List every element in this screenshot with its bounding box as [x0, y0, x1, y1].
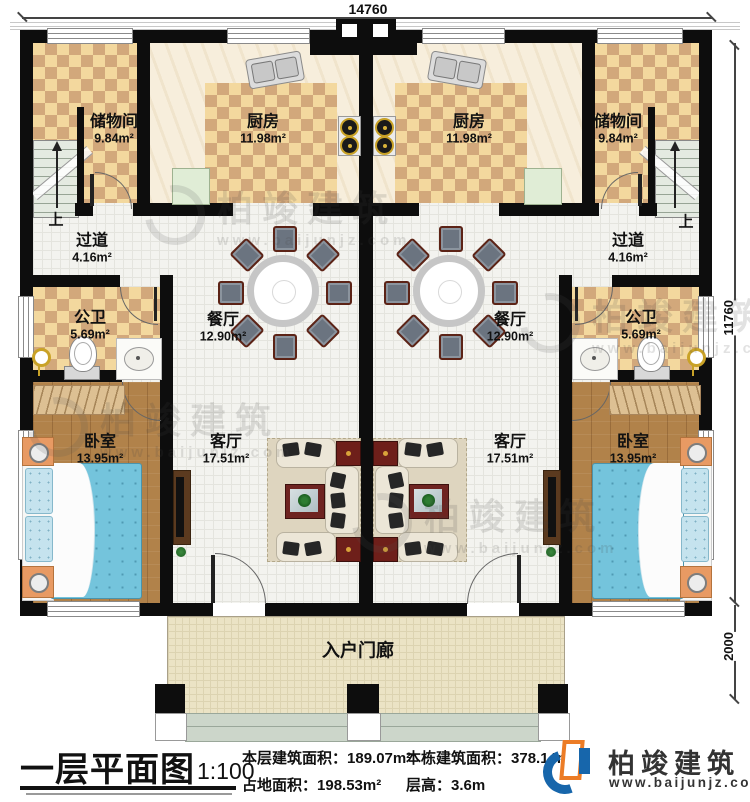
wall-stair-right	[648, 107, 655, 203]
coffee-table-left	[285, 484, 325, 519]
dining-chair	[218, 281, 244, 305]
chimney-bar	[310, 40, 417, 55]
room-area: 13.95m²	[610, 452, 657, 466]
room-label-hallway-right: 过道 4.16m²	[608, 233, 648, 266]
bed-pillow	[25, 516, 53, 562]
room-area: 17.51m²	[203, 452, 250, 466]
stat-label: 占地面积：	[242, 777, 317, 794]
dining-chair	[492, 281, 518, 305]
drain-stem-left	[38, 364, 40, 376]
chimney-flue	[342, 24, 357, 37]
dining-table-center-right	[438, 280, 462, 304]
sofa-cushion	[388, 512, 404, 529]
bed-blanket-left	[50, 463, 95, 597]
dimension-top-value: 14760	[346, 1, 391, 17]
room-area: 5.69m²	[70, 328, 110, 342]
stairs-arrow-right	[674, 150, 676, 208]
tv-plant-left	[176, 547, 186, 557]
room-name: 过道	[72, 233, 112, 251]
nightstand	[680, 437, 712, 466]
room-label-living-right: 客厅 17.51m²	[487, 434, 534, 467]
dimension-side-value: 11760	[721, 300, 736, 335]
stat-label: 层高：	[406, 777, 451, 794]
room-name: 公卫	[70, 310, 110, 328]
sofa-cushion	[330, 512, 346, 529]
drain-stem-right	[692, 364, 694, 376]
room-label-storage-left: 储物间 9.84m²	[90, 114, 138, 147]
sofa-side-right	[375, 466, 409, 534]
dining-chair	[326, 281, 352, 305]
room-name: 客厅	[203, 434, 250, 452]
bed-pillow	[681, 516, 709, 562]
stat-value: 3.6m	[451, 777, 485, 794]
stairs-up-text: 上	[48, 211, 63, 228]
porch-column	[347, 684, 379, 713]
floor-drain-left	[32, 348, 51, 367]
porch-column-base	[538, 713, 570, 741]
dimension-line-top	[22, 17, 712, 19]
side-table-left	[336, 441, 361, 466]
stat-floor-area: 本层建筑面积：189.07m²	[242, 747, 411, 768]
faucet-dot-right	[592, 356, 596, 360]
room-name: 餐厅	[200, 312, 247, 330]
door-leaf-storage-right	[638, 174, 642, 206]
bed-pillow	[681, 468, 709, 514]
room-name: 厨房	[240, 114, 286, 132]
title-underline-shadow	[26, 793, 232, 795]
sofa-cushion	[330, 472, 347, 490]
coffee-table-right	[409, 484, 449, 519]
faucet-dot-left	[136, 356, 140, 360]
porch-column	[538, 684, 568, 713]
room-area: 4.16m²	[72, 251, 112, 265]
sofa-bottom-left	[276, 532, 336, 562]
sink-basin	[251, 60, 276, 84]
sofa-cushion	[426, 442, 444, 458]
room-label-storage-right: 储物间 9.84m²	[594, 114, 642, 147]
porch-column	[155, 684, 185, 713]
sofa-cushion	[426, 541, 444, 557]
sofa-cushion	[388, 472, 405, 490]
brand-logo	[543, 738, 603, 798]
room-name: 卧室	[610, 434, 657, 452]
room-name: 储物间	[594, 114, 642, 132]
stairs-arrow-left	[56, 150, 58, 208]
room-area: 5.69m²	[621, 328, 661, 342]
stat-storey-height: 层高：3.6m	[406, 774, 485, 795]
wall-stair-left	[77, 107, 84, 203]
room-label-kitchen-right: 厨房 11.98m²	[446, 114, 492, 147]
stairs-up-label-right: 上	[678, 213, 693, 230]
side-table-right	[373, 441, 398, 466]
tv-screen-left	[176, 477, 184, 537]
wall-toprow-d	[373, 203, 419, 216]
floor-plan-page: 14760 11760 2000 柏竣建筑 www.baijunjz.com 柏…	[0, 0, 750, 802]
room-label-bathroom-left: 公卫 5.69m²	[70, 310, 110, 343]
room-label-dining-right: 餐厅 12.90m²	[487, 312, 534, 345]
stairs-arrowhead-right	[670, 141, 680, 151]
window-storage-right	[597, 28, 683, 44]
burner	[340, 136, 359, 155]
stairs-up-label-left: 上	[48, 211, 63, 228]
wall-toprow-c	[313, 203, 359, 216]
room-name: 入户门廊	[322, 641, 394, 662]
bed-pillow	[25, 468, 53, 514]
stat-label: 本栋建筑面积：	[406, 750, 511, 767]
stat-value: 189.07m²	[347, 750, 411, 767]
room-area: 9.84m²	[594, 132, 642, 146]
sofa-bottom-right	[398, 532, 458, 562]
wall-center	[359, 43, 373, 603]
brand-site: www.baijunjz.com	[609, 775, 750, 790]
sofa-cushion	[282, 442, 300, 457]
room-label-bedroom-left: 卧室 13.95m²	[77, 434, 124, 467]
sofa-cushion	[404, 442, 422, 457]
stairs-arrowhead-left	[52, 141, 62, 151]
room-label-bathroom-right: 公卫 5.69m²	[621, 310, 661, 343]
entry-opening-left	[213, 603, 265, 616]
sofa-top-right	[398, 438, 458, 468]
nightstand	[22, 437, 54, 466]
dining-chair	[384, 281, 410, 305]
room-label-porch: 入户门廊	[322, 641, 394, 662]
room-label-dining-left: 餐厅 12.90m²	[200, 312, 247, 345]
sofa-cushion	[404, 541, 422, 556]
window-bedroom-bottom-left	[47, 601, 140, 617]
room-name: 公卫	[621, 310, 661, 328]
table-plant	[298, 494, 311, 507]
sofa-side-left	[325, 466, 359, 534]
table-plant	[422, 494, 435, 507]
tv-screen-right	[548, 477, 556, 537]
window-storage-left	[47, 28, 133, 44]
sofa-cushion	[304, 442, 322, 458]
wall-storage-kitchen-left	[137, 43, 150, 216]
room-label-living-left: 客厅 17.51m²	[203, 434, 250, 467]
room-name: 卧室	[77, 434, 124, 452]
sofa-cushion	[304, 541, 322, 557]
tv-plant-right	[546, 547, 556, 557]
stove-left	[338, 116, 361, 156]
room-label-hallway-left: 过道 4.16m²	[72, 233, 112, 266]
chimney-flue	[373, 24, 388, 37]
sofa-cushion	[388, 492, 403, 508]
room-area: 12.90m²	[487, 330, 534, 344]
room-area: 17.51m²	[487, 452, 534, 466]
bed-blanket-right	[638, 463, 683, 597]
fridge-right	[524, 168, 562, 205]
sink-basin	[274, 56, 299, 80]
entry-opening-right	[467, 603, 519, 616]
room-area: 4.16m²	[608, 251, 648, 265]
stat-label: 本层建筑面积：	[242, 750, 347, 767]
toilet-seat-right	[642, 342, 660, 365]
sink-basin	[433, 56, 458, 80]
brand-logo-building-icon	[579, 748, 590, 774]
floor-drain-right	[687, 348, 706, 367]
room-name: 餐厅	[487, 312, 534, 330]
room-area: 12.90m²	[200, 330, 247, 344]
window-kitchen-right	[422, 28, 505, 44]
window-bedroom-bottom-right	[592, 601, 685, 617]
wall-bath-top-left	[20, 275, 120, 287]
plan-title: 一层平面图	[20, 742, 195, 791]
dining-chair	[439, 226, 463, 252]
window-kitchen-left	[227, 28, 310, 44]
title-underline	[20, 786, 236, 790]
room-area: 11.98m²	[240, 132, 286, 146]
dining-chair	[273, 334, 297, 360]
nightstand	[680, 566, 712, 598]
porch-column-base	[155, 713, 187, 741]
nightstand	[22, 566, 54, 598]
stat-value: 198.53m²	[317, 777, 381, 794]
room-name: 厨房	[446, 114, 492, 132]
porch-column-base	[347, 713, 381, 741]
sink-basin	[456, 60, 481, 84]
wall-inner-left	[160, 275, 173, 603]
room-label-bedroom-right: 卧室 13.95m²	[610, 434, 657, 467]
burner	[375, 136, 394, 155]
dimension-porch-value: 2000	[721, 632, 736, 661]
sofa-cushion	[282, 541, 300, 556]
burner	[375, 118, 394, 137]
room-area: 11.98m²	[446, 132, 492, 146]
side-table-right	[373, 537, 398, 562]
burner	[340, 118, 359, 137]
wall-inner-right	[559, 275, 572, 603]
sofa-top-left	[276, 438, 336, 468]
door-leaf-storage-left	[90, 174, 94, 206]
room-label-kitchen-left: 厨房 11.98m²	[240, 114, 286, 147]
toilet-seat-left	[74, 342, 92, 365]
room-name: 储物间	[90, 114, 138, 132]
side-table-left	[336, 537, 361, 562]
window-bathroom-left	[18, 296, 34, 358]
dining-chair	[273, 226, 297, 252]
stat-land-area: 占地面积：198.53m²	[242, 774, 381, 795]
room-area: 9.84m²	[90, 132, 138, 146]
dining-chair	[439, 334, 463, 360]
room-name: 客厅	[487, 434, 534, 452]
stove-right	[373, 116, 396, 156]
room-name: 过道	[608, 233, 648, 251]
sofa-cushion	[330, 492, 345, 508]
wardrobe-left	[33, 385, 125, 415]
wall-bath-top-right	[612, 275, 712, 287]
wardrobe-right	[609, 385, 701, 415]
room-area: 13.95m²	[77, 452, 124, 466]
stairs-up-text: 上	[678, 213, 693, 230]
fridge-left	[172, 168, 210, 205]
dining-table-center-left	[272, 280, 296, 304]
